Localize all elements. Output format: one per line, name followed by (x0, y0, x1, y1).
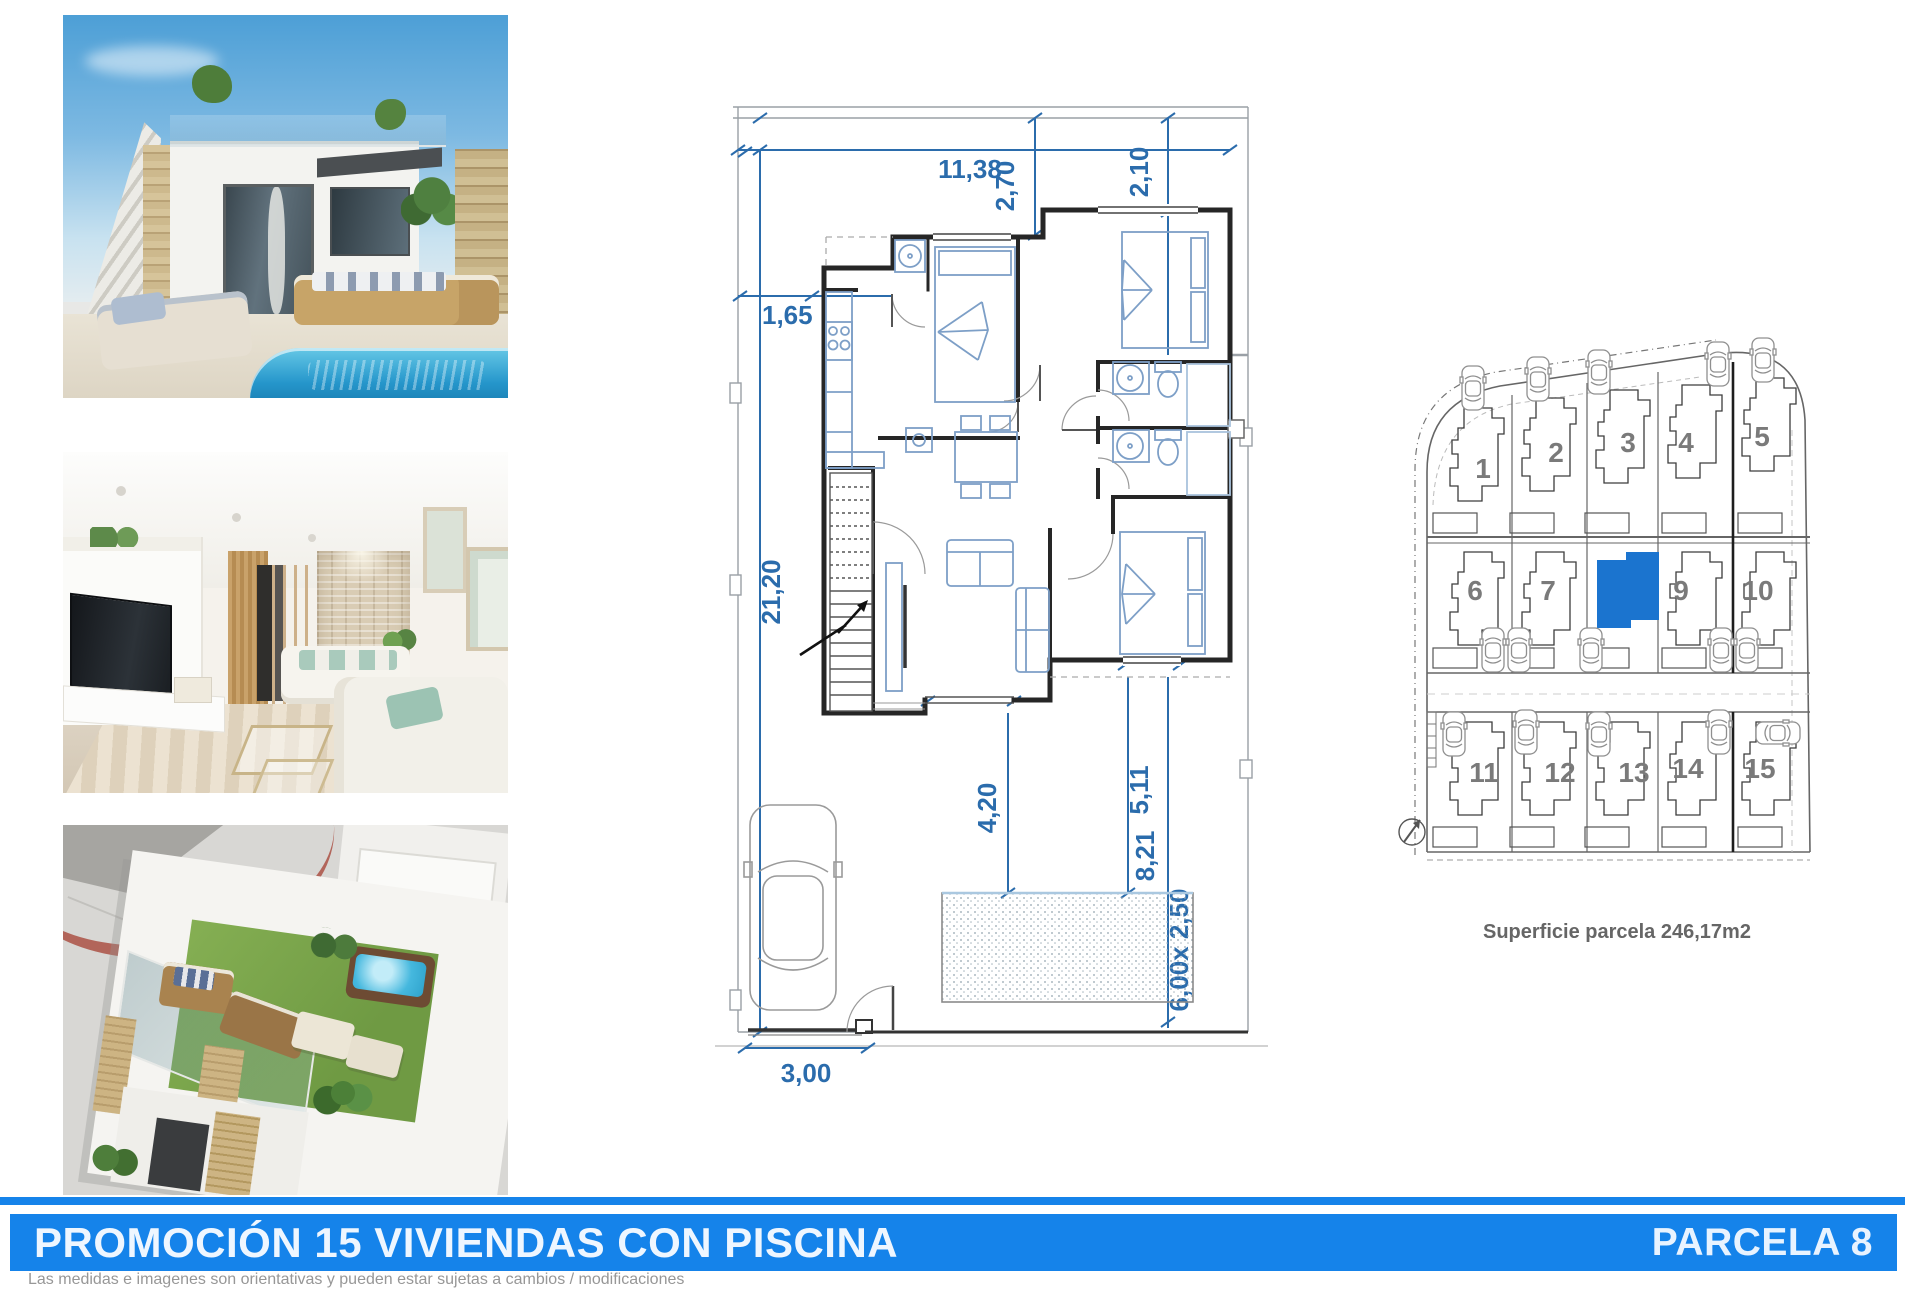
parcel-8-highlight[interactable] (1597, 552, 1659, 628)
sofa-main (947, 540, 1013, 586)
kitchen (826, 292, 884, 468)
floorplan: 11,38 2,70 2,10 1,65 21,20 4,20 5,11 8,2… (715, 85, 1270, 1095)
window-right (330, 187, 410, 256)
parcel-number-12: 12 (1544, 757, 1575, 788)
fern-plant (312, 1069, 374, 1117)
parcel-label: PARCELA 8 (1652, 1221, 1873, 1265)
compass-icon (1399, 819, 1425, 845)
cushions-mint (299, 650, 397, 670)
stone-pillar-main (183, 95, 228, 321)
parcel-number-7: 7 (1540, 575, 1556, 606)
furniture (826, 232, 1230, 691)
parcel-number-9: 9 (1673, 575, 1689, 606)
parcel-number-4: 4 (1678, 427, 1694, 458)
car-parking (744, 805, 842, 1010)
bed-3 (1120, 532, 1205, 654)
sofa-side (1016, 588, 1049, 672)
console-decor (174, 677, 212, 703)
dim-court-a: 4,20 (972, 783, 1002, 834)
bed-2 (1122, 232, 1208, 348)
washer (895, 240, 925, 272)
parcel-number-14: 14 (1672, 753, 1704, 784)
spotlight-3 (308, 534, 316, 542)
parked-cars (1441, 338, 1800, 756)
parcel-number-10: 10 (1742, 575, 1773, 606)
siteplan: 1 2 3 4 5 6 7 9 10 11 12 13 14 15 (1395, 335, 1840, 955)
dim-court-c: 8,21 (1130, 831, 1160, 882)
sidewalk-plants (81, 1136, 143, 1180)
footer-banner: PROMOCIÓN 15 VIVIENDAS CON PISCINA PARCE… (10, 1214, 1897, 1271)
house-walls (824, 210, 1230, 713)
boundary-hatch (1427, 712, 1436, 767)
dim-court-b: 5,11 (1124, 765, 1154, 814)
dim-offset-right: 2,10 (1124, 147, 1154, 198)
parcel-number-3: 3 (1620, 427, 1636, 458)
parcel-number-6: 6 (1467, 575, 1483, 606)
sofa-cushions (312, 272, 446, 291)
disclaimer-text: Las medidas e imagenes son orientativas … (28, 1271, 1428, 1289)
frame-2 (466, 547, 508, 650)
dim-depth-left: 21,20 (756, 559, 786, 624)
photo-rooftop-aerial (63, 825, 508, 1195)
stairs (800, 473, 872, 711)
parcel-number-5: 5 (1754, 421, 1770, 452)
photo-living-room (63, 452, 508, 793)
pool-sparkle (308, 360, 486, 391)
dim-entrance: 3,00 (781, 1058, 832, 1088)
parcel-number-11: 11 (1469, 757, 1499, 788)
parcel-number-15: 15 (1744, 753, 1775, 784)
coffee-table-2 (251, 759, 334, 793)
dim-offset-mid: 2,70 (990, 161, 1020, 212)
photo-villa-exterior (63, 15, 508, 398)
wall-glow (330, 551, 392, 585)
door-curtain (268, 187, 286, 313)
pool (942, 893, 1193, 1002)
footer-top-rule (0, 1197, 1905, 1205)
promotion-title: PROMOCIÓN 15 VIVIENDAS CON PISCINA (34, 1219, 898, 1267)
dining-table (955, 416, 1017, 498)
tv-unit (886, 563, 905, 691)
bathroom-1 (1113, 362, 1230, 426)
parcel-number-13: 13 (1618, 757, 1649, 788)
frame-1 (423, 507, 467, 593)
parcel-number-2: 2 (1548, 437, 1564, 468)
unit-plants (90, 527, 152, 547)
dim-left-upper: 1,65 (762, 300, 813, 330)
bathroom-2 (1113, 430, 1230, 495)
lower-window (148, 1118, 210, 1191)
parcel-area-label: Superficie parcela 246,17m2 (1483, 921, 1783, 944)
parcel-number-1: 1 (1475, 453, 1491, 484)
